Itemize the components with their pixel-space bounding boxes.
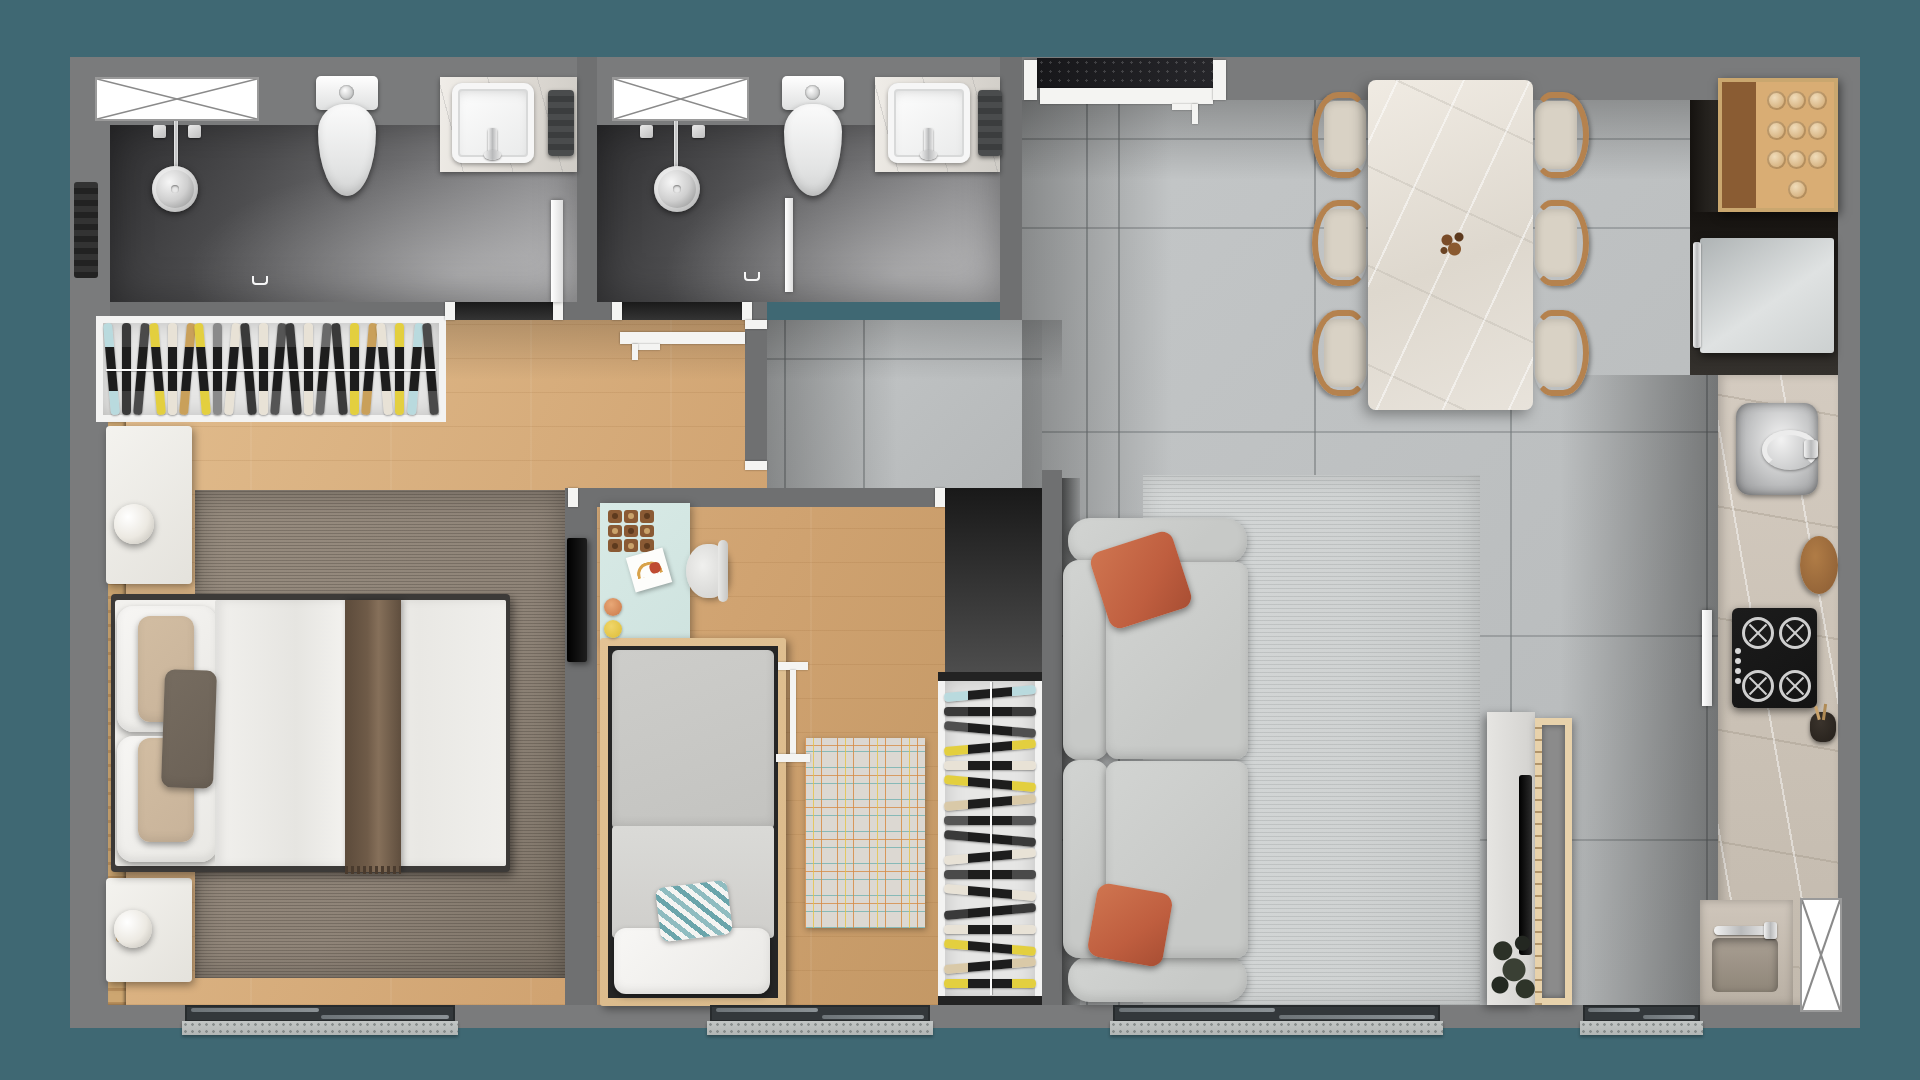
- bathroom2-right-wall: [1000, 57, 1022, 320]
- burner-icon: [1779, 617, 1811, 649]
- shower1-head-icon: [152, 166, 198, 212]
- window-x-icon: [614, 79, 747, 119]
- gas-cooktop: [1732, 608, 1817, 708]
- door-frame: [742, 302, 752, 320]
- door-frame: [745, 461, 767, 470]
- wardrobe-rail: [106, 369, 436, 371]
- lamp-stem: [790, 670, 796, 754]
- shower2-glass-partition: [785, 198, 793, 292]
- chair-seat: [1324, 209, 1366, 277]
- fridge: [1700, 238, 1834, 353]
- kids-sliding-door: [710, 1005, 930, 1022]
- shower2-valve: [640, 125, 653, 138]
- shower2-head-icon: [654, 166, 700, 212]
- master-door-threshold: [182, 1021, 458, 1035]
- door-frame: [935, 488, 945, 507]
- entry-door-leaf: [1040, 88, 1213, 104]
- bathroom1-floor-drain-icon: [252, 276, 268, 285]
- kids-living-wall: [1042, 470, 1062, 1005]
- kitchen-upper-cabinet: [1718, 78, 1838, 212]
- prep-faucet-icon: [1714, 926, 1768, 935]
- lamp-top: [778, 662, 808, 670]
- bathroom2-door-handle: [632, 344, 638, 360]
- burner-icon: [1779, 670, 1811, 702]
- crayon-cup: [604, 598, 622, 616]
- entry-frame: [1024, 60, 1037, 100]
- kitchen-faucet-base: [1804, 440, 1818, 458]
- door-frame: [553, 302, 563, 320]
- bathroom1-window: [95, 77, 259, 121]
- bathroom1-radiator: [74, 182, 98, 278]
- table-centerpiece: [1438, 228, 1468, 258]
- nightstand1-lamp: [114, 504, 154, 544]
- tic-tac-toe-game: [608, 510, 654, 552]
- bathroom2-door-opening: [622, 302, 742, 320]
- drinking-glass: [1808, 121, 1827, 140]
- hall-tile-floor: [767, 320, 1042, 488]
- accent-pillow: [161, 669, 217, 789]
- utensil-crock: [1810, 712, 1836, 742]
- chair-seat: [1535, 101, 1577, 169]
- ttt-cell: [640, 510, 654, 523]
- bathroom1-faucet-icon: [484, 150, 501, 160]
- ttt-cell: [608, 539, 622, 552]
- stove-knob: [1735, 648, 1741, 654]
- dining-chair: [1312, 200, 1368, 286]
- entry-threshold-granite: [1037, 58, 1213, 88]
- kids-floor-lamp: [776, 662, 810, 762]
- bathroom2-faucet-icon: [920, 150, 937, 160]
- wardrobe-rail: [990, 682, 992, 995]
- toilet1-flush-button: [339, 85, 354, 100]
- drinking-glass: [1787, 91, 1806, 110]
- dining-chair: [1533, 92, 1589, 178]
- prep-faucet-base: [1764, 922, 1777, 939]
- dining-chair: [1312, 92, 1368, 178]
- bathroom-divider-wall: [577, 57, 597, 320]
- bedroom-wall-tv: [567, 538, 587, 662]
- hall-living-wall: [745, 320, 767, 470]
- door-frame: [612, 302, 622, 320]
- dining-chair: [1533, 200, 1589, 286]
- drinking-glass: [1808, 150, 1827, 169]
- desk-chair: [686, 540, 730, 602]
- wardrobe-side-shadow: [945, 488, 1042, 672]
- crayon-cup: [604, 620, 622, 638]
- ttt-cell: [624, 539, 638, 552]
- chair-back: [718, 540, 728, 602]
- toilet2-flush-button: [805, 85, 820, 100]
- ttt-cell: [608, 510, 622, 523]
- nightstand2-lamp: [114, 910, 152, 948]
- plant: [1486, 928, 1542, 1004]
- cabinet-glasses: [1766, 86, 1828, 204]
- stove-knob: [1735, 658, 1741, 664]
- kitchen-sliding-door: [1583, 1005, 1700, 1022]
- bathroom2-towel: [978, 90, 1002, 156]
- drinking-glass: [1767, 150, 1786, 169]
- drinking-glass: [1787, 121, 1806, 140]
- door-frame: [445, 302, 455, 320]
- kids-wardrobe: [938, 672, 1042, 1005]
- drinking-glass: [1767, 91, 1786, 110]
- wardrobe-cap: [938, 672, 1042, 681]
- kids-door-threshold: [707, 1021, 933, 1035]
- window-x-icon: [1802, 900, 1840, 1010]
- ttt-cell: [624, 525, 638, 538]
- master-sliding-door: [185, 1005, 455, 1022]
- shower1-valve: [188, 125, 201, 138]
- drinking-glass: [1767, 121, 1786, 140]
- drinking-glass: [1787, 150, 1806, 169]
- drinking-glass: [1788, 180, 1807, 199]
- living-door-threshold: [1110, 1021, 1443, 1035]
- bathroom1-door-opening: [455, 302, 553, 320]
- master-wardrobe: [96, 316, 446, 422]
- door-frame: [568, 488, 578, 507]
- entry-door-handle: [1192, 104, 1198, 124]
- nightstand-1: [106, 426, 192, 584]
- bathroom2-floor-drain-icon: [744, 272, 760, 281]
- shower2-arm: [674, 117, 678, 173]
- stove-knob: [1735, 668, 1741, 674]
- ttt-cell: [640, 525, 654, 538]
- dining-chair: [1312, 310, 1368, 396]
- ttt-cell: [624, 510, 638, 523]
- chevron-pillow: [655, 880, 733, 942]
- kids-duvet: [612, 650, 774, 830]
- terracotta-pillow: [1086, 882, 1174, 968]
- living-sliding-door: [1113, 1005, 1440, 1022]
- kitchen-door-threshold: [1580, 1021, 1703, 1035]
- shower1-arm: [174, 117, 178, 173]
- burner-icon: [1742, 617, 1774, 649]
- right-wall: [1838, 57, 1860, 1028]
- burner-icon: [1742, 670, 1774, 702]
- bathroom1-towel: [548, 90, 574, 156]
- floor-plan: [0, 0, 1920, 1080]
- chair-seat: [1324, 101, 1366, 169]
- bathroom2-window: [612, 77, 749, 121]
- kitchen-pocket-door: [1702, 610, 1712, 706]
- lamp-base: [776, 754, 810, 762]
- shower1-valve: [153, 125, 166, 138]
- kitchen-window: [1800, 898, 1842, 1012]
- chair-seat: [1535, 319, 1577, 387]
- stove-knob: [1735, 678, 1741, 684]
- window-x-icon: [97, 79, 257, 119]
- entry-frame: [1213, 60, 1226, 100]
- dining-chair: [1533, 310, 1589, 396]
- bathroom2-door-leaf: [620, 332, 745, 344]
- bathroom1-door-leaf: [551, 200, 563, 302]
- chair-seat: [1324, 319, 1366, 387]
- shower2-valve: [692, 125, 705, 138]
- utensil: [1822, 704, 1827, 720]
- drinking-glass: [1808, 91, 1827, 110]
- fridge-handle: [1693, 242, 1701, 348]
- prep-basin: [1712, 938, 1778, 992]
- throw-fringe: [345, 866, 401, 874]
- chair-seat: [1535, 209, 1577, 277]
- brown-throw-blanket: [345, 600, 401, 872]
- wardrobe-cap: [938, 996, 1042, 1005]
- ttt-cell: [608, 525, 622, 538]
- kids-checkered-rug: [805, 738, 925, 928]
- door-frame: [745, 320, 767, 329]
- cutting-board: [1800, 536, 1838, 594]
